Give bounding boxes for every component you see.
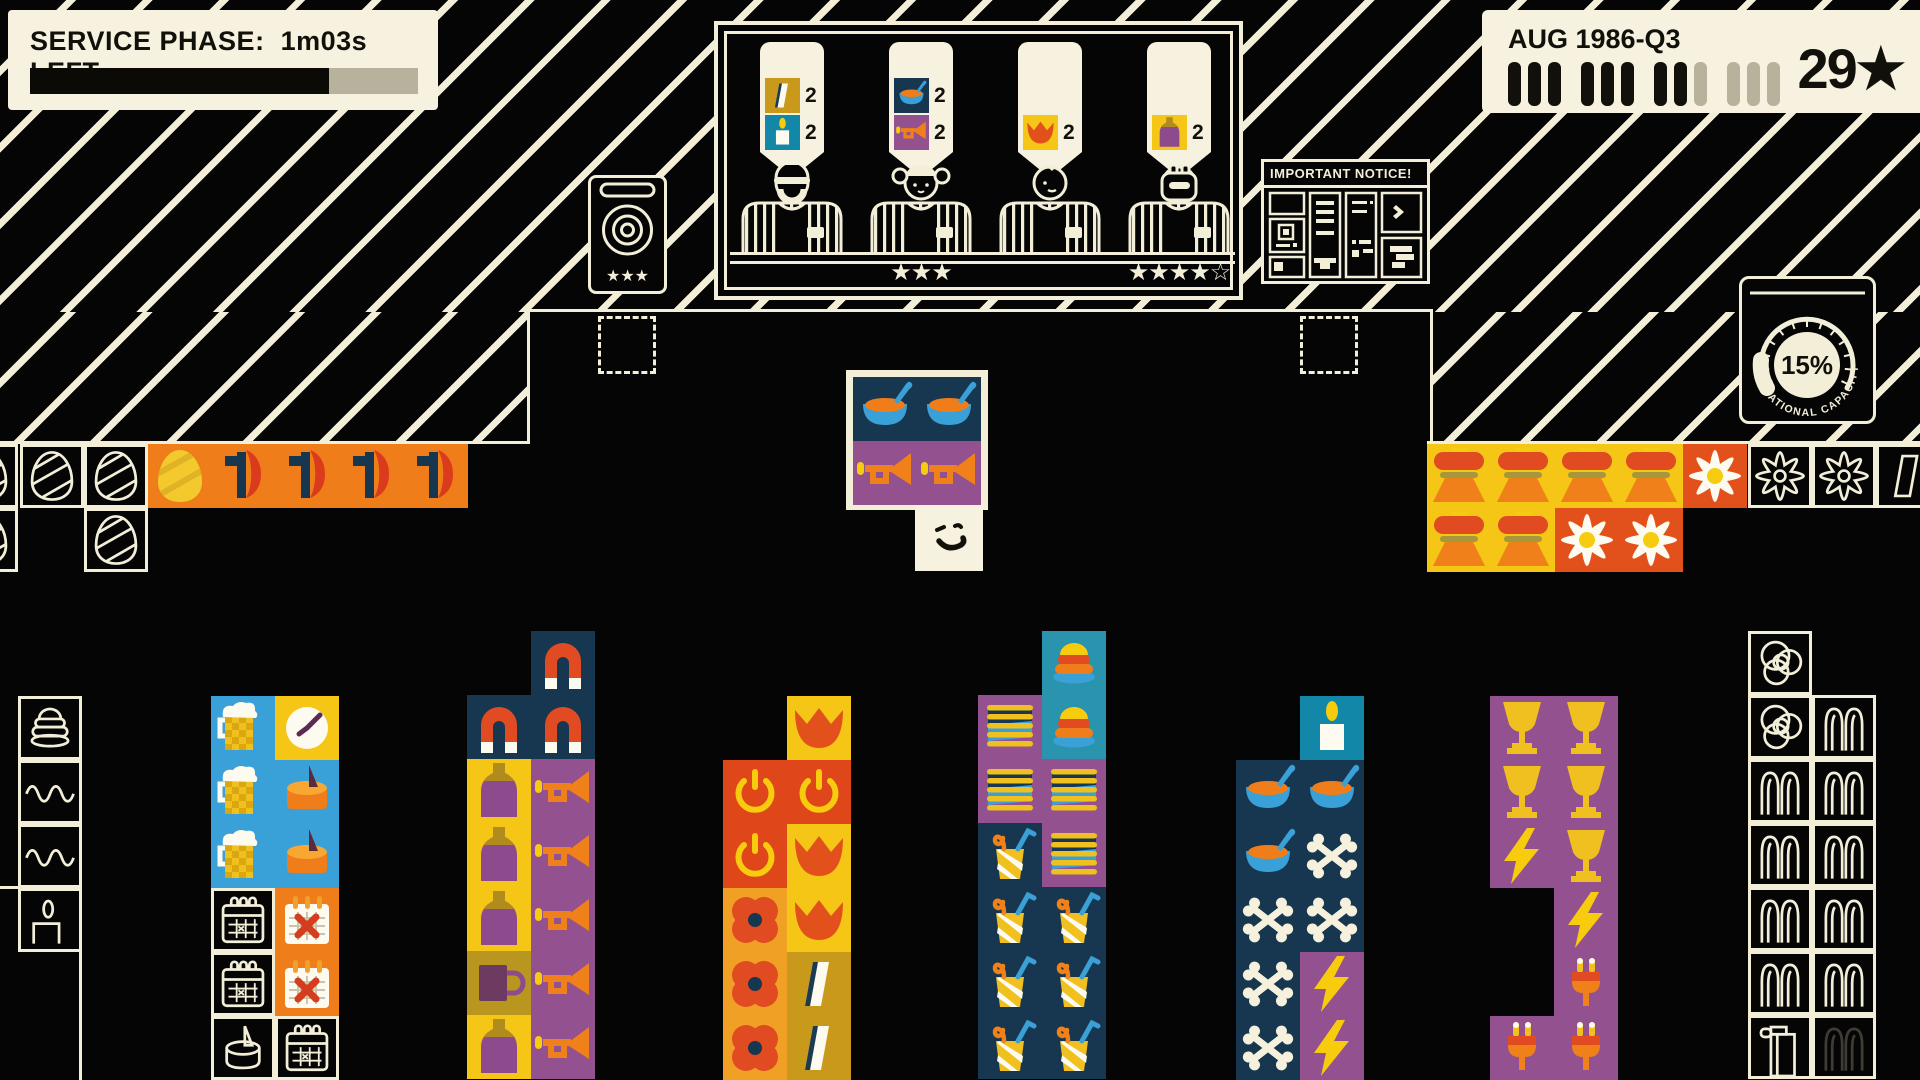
- customer-robot: 2: [1114, 25, 1244, 285]
- customer-figure: [856, 165, 986, 255]
- tile-candle: [765, 115, 800, 150]
- tile-egg-outline[interactable]: [0, 444, 18, 508]
- tile-soup[interactable]: [1236, 824, 1300, 888]
- tile-egg-outline[interactable]: [20, 444, 84, 508]
- speaker-graphic: [591, 178, 664, 263]
- tile-egg[interactable]: [148, 444, 212, 508]
- tile-table[interactable]: [1491, 444, 1555, 508]
- tile-axe[interactable]: [276, 444, 340, 508]
- tile-pasta[interactable]: [1042, 759, 1106, 823]
- tile-trumpet[interactable]: [917, 441, 981, 505]
- tile-clock[interactable]: [275, 696, 339, 760]
- tile-pasta-outline[interactable]: [18, 824, 82, 888]
- player-face: [915, 505, 983, 571]
- tile-poppy[interactable]: [723, 952, 787, 1016]
- drop-target[interactable]: [598, 316, 656, 374]
- request-qty: 2: [805, 121, 817, 145]
- tile-table[interactable]: [1491, 508, 1555, 572]
- tile-drink[interactable]: [1042, 887, 1106, 951]
- tile-burger[interactable]: [1042, 631, 1106, 695]
- tile-drink[interactable]: [1042, 951, 1106, 1015]
- satisfaction-stars: ★★★: [890, 258, 952, 287]
- request-item-candle: 2: [765, 115, 817, 150]
- tile-tulip[interactable]: [787, 888, 851, 952]
- tile-goblet[interactable]: [1490, 696, 1554, 760]
- tile-table[interactable]: [1427, 444, 1491, 508]
- tile-poppy-outline[interactable]: [1748, 695, 1812, 759]
- tile-bones[interactable]: [1236, 952, 1300, 1016]
- tile-bones[interactable]: [1236, 1016, 1300, 1080]
- tile-goblet[interactable]: [1554, 760, 1618, 824]
- date-score-panel: AUG 1986-Q3 29★: [1482, 10, 1920, 113]
- tile-trumpet: [894, 115, 929, 150]
- tile-egg-outline[interactable]: [0, 508, 18, 572]
- wall-edge: [527, 309, 530, 444]
- tile-loops-outline[interactable]: [1748, 887, 1812, 951]
- request-qty: 2: [1192, 121, 1204, 145]
- tile-bottle[interactable]: [467, 823, 531, 887]
- tile-tulip[interactable]: [787, 824, 851, 888]
- customer-figure: [985, 165, 1115, 255]
- tile-loops-outline[interactable]: [1812, 887, 1876, 951]
- tile-cheese[interactable]: [787, 952, 851, 1016]
- wall-edge: [1430, 309, 1433, 444]
- month-progress-bars: [1508, 62, 1787, 106]
- tile-bottle[interactable]: [467, 759, 531, 823]
- tile-trumpet[interactable]: [531, 887, 595, 951]
- tile-tulip[interactable]: [787, 696, 851, 760]
- tile-beer[interactable]: [211, 696, 275, 760]
- tile-soup[interactable]: [853, 377, 917, 441]
- tile-pasta-outline[interactable]: [18, 760, 82, 824]
- tile-bottle[interactable]: [467, 887, 531, 951]
- tile-poppy[interactable]: [723, 888, 787, 952]
- request-bubble: 2: [1018, 42, 1082, 152]
- tile-trumpet[interactable]: [531, 1015, 595, 1079]
- tile-candle-outline[interactable]: [18, 888, 82, 952]
- tile-loops-outline[interactable]: [1812, 951, 1876, 1015]
- counter-surface: [730, 252, 1235, 255]
- tile-power[interactable]: [787, 760, 851, 824]
- player-character[interactable]: [915, 505, 983, 571]
- tile-plug[interactable]: [1490, 1016, 1554, 1080]
- notice-board: IMPORTANT NOTICE!: [1261, 159, 1430, 284]
- request-item-cheese: 2: [765, 78, 817, 113]
- tile-power[interactable]: [723, 824, 787, 888]
- tile-loops-outline[interactable]: [1748, 823, 1812, 887]
- tile-soup[interactable]: [917, 377, 981, 441]
- tile-cal-outline[interactable]: [275, 1016, 339, 1080]
- tile-loops-outline[interactable]: [1812, 759, 1876, 823]
- tile-loops-outline[interactable]: [1748, 759, 1812, 823]
- floor-guide-line: [79, 952, 82, 1080]
- notice-title: IMPORTANT NOTICE!: [1264, 162, 1427, 188]
- tile-pasta[interactable]: [978, 695, 1042, 759]
- tile-goblet[interactable]: [1490, 760, 1554, 824]
- satisfaction-stars: ★★★★☆: [1128, 258, 1231, 287]
- month-bar: [1621, 62, 1634, 106]
- tile-loops-outline[interactable]: [1812, 695, 1876, 759]
- tile-trumpet[interactable]: [853, 441, 917, 505]
- request-item-tulip: 2: [1023, 115, 1075, 150]
- tile-beer[interactable]: [211, 760, 275, 824]
- tile-lightning[interactable]: [1554, 888, 1618, 952]
- tile-soup[interactable]: [1236, 760, 1300, 824]
- tile-trumpet[interactable]: [531, 823, 595, 887]
- tile-drink[interactable]: [978, 887, 1042, 951]
- wall-stripes-left: [0, 312, 527, 444]
- tile-drink[interactable]: [978, 951, 1042, 1015]
- capacity-gauge: 15% OPERATIONAL CAPACITY: [1739, 276, 1876, 424]
- month-bar: [1528, 62, 1541, 106]
- drop-target[interactable]: [1300, 316, 1358, 374]
- tile-soup[interactable]: [1300, 760, 1364, 824]
- request-item-bottle: 2: [1152, 115, 1204, 150]
- month-bar: [1601, 62, 1614, 106]
- tile-pasta[interactable]: [978, 759, 1042, 823]
- tile-mug[interactable]: [467, 951, 531, 1015]
- tile-bones[interactable]: [1300, 824, 1364, 888]
- tile-bones[interactable]: [1300, 888, 1364, 952]
- tile-magnet[interactable]: [531, 631, 595, 695]
- tile-sundial[interactable]: [275, 760, 339, 824]
- notice-papers: [1264, 188, 1427, 282]
- request-item-soup: 2: [894, 78, 946, 113]
- tile-plug[interactable]: [1554, 1016, 1618, 1080]
- month-bar: [1674, 62, 1687, 106]
- tile-lightning[interactable]: [1300, 952, 1364, 1016]
- tile-burger-outline[interactable]: [18, 696, 82, 760]
- tile-table[interactable]: [1619, 444, 1683, 508]
- tile-daisy[interactable]: [1683, 444, 1747, 508]
- capacity-percent: 15%: [1781, 350, 1833, 380]
- tile-burger[interactable]: [1042, 695, 1106, 759]
- jukebox-speaker[interactable]: ★★★: [588, 175, 667, 294]
- tile-sundial[interactable]: [275, 824, 339, 888]
- tile-egg-outline[interactable]: [84, 508, 148, 572]
- tile-magnet[interactable]: [531, 695, 595, 759]
- star-score: 29★: [1798, 36, 1905, 102]
- tile-tulip: [1023, 115, 1058, 150]
- tile-bottle: [1152, 115, 1187, 150]
- tile-daisy-outline[interactable]: [1748, 444, 1812, 508]
- tile-power[interactable]: [723, 760, 787, 824]
- customer-woman: 2 2: [856, 25, 986, 285]
- tile-loops-outline[interactable]: [1748, 951, 1812, 1015]
- tile-cheese: [765, 78, 800, 113]
- month-bar: [1767, 62, 1780, 106]
- request-bubble: 2 2: [889, 42, 953, 152]
- customer-grandpa: 2 2: [727, 25, 857, 285]
- month-bar: [1727, 62, 1740, 106]
- request-qty: 2: [934, 84, 946, 108]
- request-qty: 2: [934, 121, 946, 145]
- tile-lightning[interactable]: [1490, 824, 1554, 888]
- month-bar: [1508, 62, 1521, 106]
- tile-cheese-outline[interactable]: [1876, 444, 1920, 508]
- tile-daisy-outline[interactable]: [1812, 444, 1876, 508]
- tile-poppy[interactable]: [723, 1016, 787, 1080]
- tile-poppy-outline[interactable]: [1748, 631, 1812, 695]
- floor-guide-line: [0, 886, 18, 889]
- tile-drink[interactable]: [978, 1015, 1042, 1079]
- service-phase-panel: SERVICE PHASE: 1m03s LEFT: [8, 10, 438, 110]
- customer-man: 2: [985, 25, 1115, 285]
- tile-soup: [894, 78, 929, 113]
- request-item-trumpet: 2: [894, 115, 946, 150]
- customer-figure: [1114, 165, 1244, 255]
- request-qty: 2: [1063, 121, 1075, 145]
- tile-beer[interactable]: [211, 824, 275, 888]
- request-bubble: 2 2: [760, 42, 824, 152]
- tile-egg-outline[interactable]: [84, 444, 148, 508]
- request-qty: 2: [805, 84, 817, 108]
- tile-goblet[interactable]: [1554, 824, 1618, 888]
- service-counter: 2 2 2 2: [714, 21, 1243, 300]
- tile-axe[interactable]: [340, 444, 404, 508]
- tile-sundial-outline[interactable]: [211, 1016, 275, 1080]
- tile-cal-red[interactable]: [275, 888, 339, 952]
- tile-table[interactable]: [1555, 444, 1619, 508]
- tile-bones[interactable]: [1236, 888, 1300, 952]
- service-phase-progressbar: [30, 68, 418, 94]
- tile-thermos-outline[interactable]: [1748, 1015, 1812, 1079]
- game-screen: SERVICE PHASE: 1m03s LEFT AUG 1986-Q3 29…: [0, 0, 1920, 1080]
- held-block[interactable]: [846, 370, 988, 510]
- tile-axe[interactable]: [212, 444, 276, 508]
- tile-loops-outline[interactable]: [1812, 823, 1876, 887]
- tile-drink[interactable]: [978, 823, 1042, 887]
- tile-pasta[interactable]: [1042, 823, 1106, 887]
- star-icon: ★: [1856, 37, 1904, 100]
- wall-edge: [527, 309, 1433, 312]
- tile-table[interactable]: [1427, 508, 1491, 572]
- tile-trumpet[interactable]: [531, 951, 595, 1015]
- request-bubble: 2: [1147, 42, 1211, 152]
- jukebox-stars: ★★★: [606, 266, 649, 286]
- tile-candle[interactable]: [1300, 696, 1364, 760]
- tile-trumpet[interactable]: [531, 759, 595, 823]
- service-phase-progress-fill: [30, 68, 329, 94]
- tile-cal-red[interactable]: [275, 952, 339, 1016]
- tile-plug[interactable]: [1554, 952, 1618, 1016]
- tile-goblet[interactable]: [1554, 696, 1618, 760]
- tile-loops-dim[interactable]: [1812, 1015, 1876, 1079]
- month-bar: [1581, 62, 1594, 106]
- tile-magnet[interactable]: [467, 695, 531, 759]
- tile-lightning[interactable]: [1300, 1016, 1364, 1080]
- tile-daisy[interactable]: [1555, 508, 1619, 572]
- tile-drink[interactable]: [1042, 1015, 1106, 1079]
- date-label: AUG 1986-Q3: [1508, 24, 1681, 55]
- customer-figure: [727, 165, 857, 255]
- tile-cal-outline[interactable]: [211, 952, 275, 1016]
- month-bar: [1654, 62, 1667, 106]
- month-bar: [1694, 62, 1707, 106]
- month-bar: [1747, 62, 1760, 106]
- tile-cheese[interactable]: [787, 1016, 851, 1080]
- tile-cal-outline[interactable]: [211, 888, 275, 952]
- tile-bottle[interactable]: [467, 1015, 531, 1079]
- tile-axe[interactable]: [404, 444, 468, 508]
- tile-daisy[interactable]: [1619, 508, 1683, 572]
- month-bar: [1548, 62, 1561, 106]
